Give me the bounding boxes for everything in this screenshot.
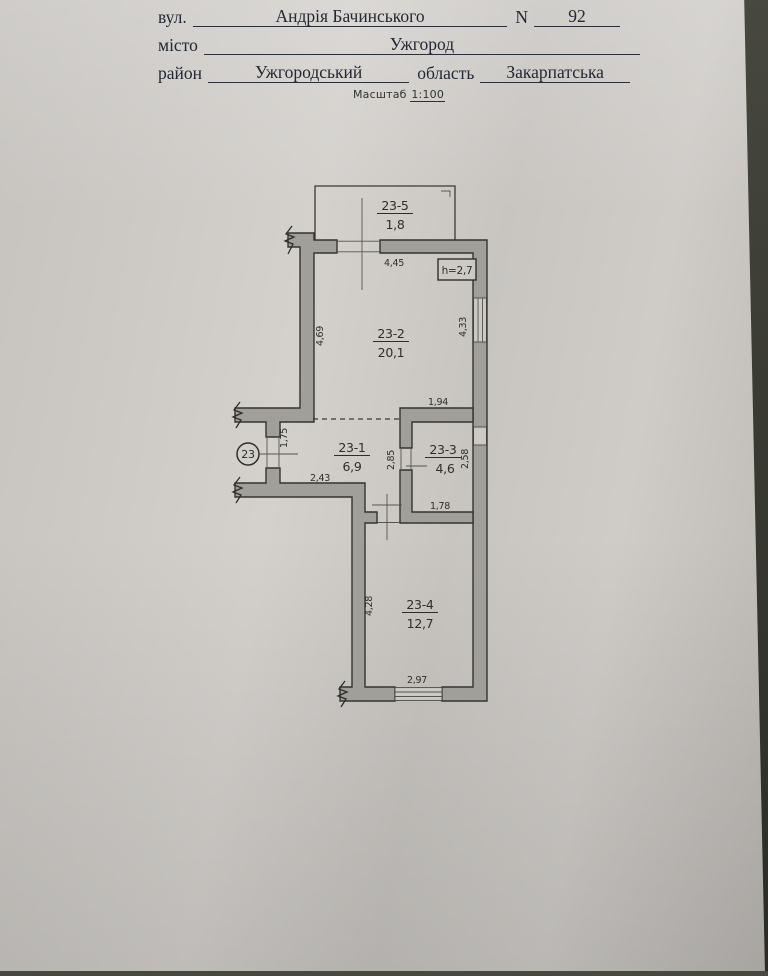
dim-room3-top: 1,94 — [428, 397, 448, 408]
window-room2 — [474, 298, 487, 342]
floor-plan: 23 h=2,7 23-5 1,8 23-2 20,1 23-1 6,9 23-… — [0, 0, 768, 971]
balcony-corner-detail — [441, 191, 450, 197]
paper-sheet: вул. Андрія Бачинського N 92 місто Ужгор… — [0, 0, 768, 971]
oblast-value: Закарпатська — [480, 62, 630, 83]
scale-label: Масштаб — [353, 88, 407, 101]
house-number-value: 92 — [534, 6, 620, 27]
room-23-4-area: 12,7 — [407, 616, 434, 631]
room-23-1-number: 23-1 — [338, 440, 365, 455]
dim-room3-door: 2,85 — [386, 450, 397, 470]
room-23-1-area: 6,9 — [343, 459, 362, 474]
vent-shaft-room3 — [474, 427, 487, 445]
room-23-5-area: 1,8 — [386, 217, 405, 232]
dim-room2-left: 4,69 — [315, 326, 326, 346]
oblast-label: область — [409, 63, 480, 83]
district-label: район — [158, 63, 208, 83]
district-value: Ужгородський — [208, 62, 409, 83]
room-23-4-number: 23-4 — [406, 597, 434, 612]
city-value: Ужгород — [204, 34, 640, 55]
title-block: вул. Андрія Бачинського N 92 місто Ужгор… — [158, 6, 640, 101]
entry-door-opening — [267, 438, 279, 467]
dim-entry-door: 1,75 — [279, 428, 290, 448]
city-label: місто — [158, 35, 204, 55]
dim-hall-width: 2,43 — [310, 473, 330, 484]
apartment-number: 23 — [241, 448, 255, 461]
dim-room3-width: 1,78 — [430, 501, 450, 512]
window-room4 — [395, 688, 442, 701]
room-23-2-area: 20,1 — [378, 345, 405, 360]
district-row: район Ужгородський область Закарпатська — [158, 62, 640, 83]
dim-room2-right: 4,33 — [458, 317, 469, 337]
wall-room3-bottom-left — [400, 470, 473, 523]
height-note: h=2,7 — [442, 265, 473, 277]
scale-value: 1:100 — [410, 88, 445, 102]
room-23-5-number: 23-5 — [381, 198, 408, 213]
street-label: вул. — [158, 7, 193, 27]
room-23-3-area: 4,6 — [436, 461, 455, 476]
dim-room4-height: 4,28 — [364, 596, 375, 616]
scale-note: Масштаб 1:100 — [158, 88, 640, 101]
street-row: вул. Андрія Бачинського N 92 — [158, 6, 640, 27]
wall-bottom-left-complex — [235, 468, 395, 701]
dim-room2-width: 4,45 — [384, 258, 404, 269]
dim-room3-right: 2,58 — [460, 449, 471, 469]
dim-room4-width: 2,97 — [407, 675, 427, 686]
city-row: місто Ужгород — [158, 34, 640, 55]
street-value: Андрія Бачинського — [193, 6, 508, 27]
room-23-3-number: 23-3 — [429, 442, 456, 457]
balcony-door-opening — [337, 241, 380, 252]
house-number-label: N — [507, 7, 534, 27]
room-23-2-number: 23-2 — [377, 326, 404, 341]
